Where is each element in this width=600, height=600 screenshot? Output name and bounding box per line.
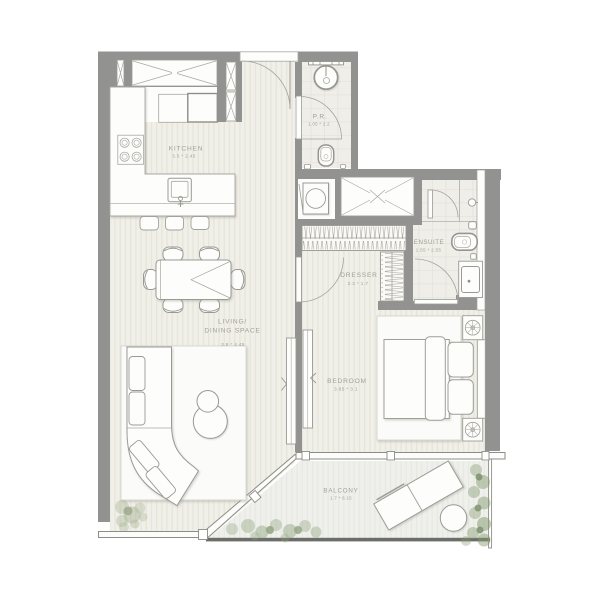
svg-text:DINING SPACE: DINING SPACE <box>204 328 260 335</box>
svg-text:BEDROOM: BEDROOM <box>327 378 367 385</box>
svg-text:KITCHEN: KITCHEN <box>169 146 204 153</box>
svg-text:2.3 * 1.7: 2.3 * 1.7 <box>348 281 369 286</box>
svg-text:3.5 * 2.45: 3.5 * 2.45 <box>172 154 196 159</box>
svg-text:3.8 * 4.45: 3.8 * 4.45 <box>221 342 245 347</box>
svg-text:DRESSER: DRESSER <box>340 272 377 279</box>
svg-text:1.55 * 2.55: 1.55 * 2.55 <box>416 248 442 253</box>
svg-text:3.85 * 3.1: 3.85 * 3.1 <box>334 387 358 392</box>
svg-text:ENSUITE: ENSUITE <box>414 239 444 246</box>
svg-text:LIVING/: LIVING/ <box>218 319 247 326</box>
svg-text:1.7 * 8.15: 1.7 * 8.15 <box>330 496 352 501</box>
svg-text:1.05 * 2.2: 1.05 * 2.2 <box>308 122 330 127</box>
svg-text:BALCONY: BALCONY <box>323 488 358 495</box>
svg-text:P.R.: P.R. <box>313 114 328 121</box>
